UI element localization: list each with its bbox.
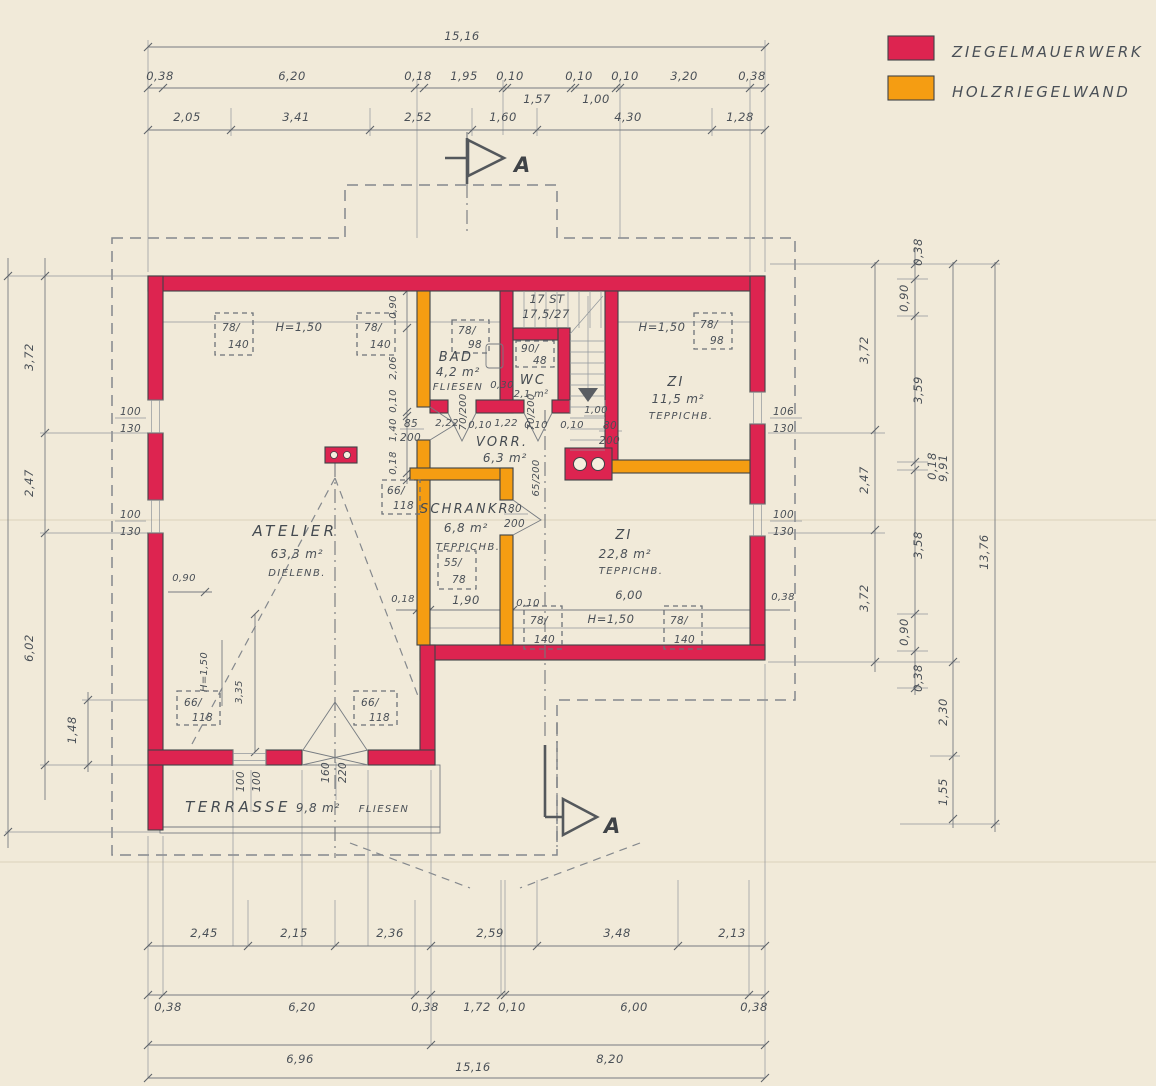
room-area: 11,5 m² — [652, 392, 705, 406]
dim-label: 0,10 — [560, 420, 583, 431]
door-label: 200 — [504, 518, 525, 530]
stair-ratio: 17,5/27 — [522, 307, 570, 321]
window-label: 78/ — [458, 325, 477, 337]
dim-label: 1,00 — [582, 92, 610, 106]
room-area: 4,2 m² — [436, 365, 480, 379]
dim-label: 1,90 — [452, 593, 480, 607]
dim-label: 3,72 — [857, 336, 871, 364]
window-label: 100 — [773, 509, 794, 521]
dim-label: 0,10 — [516, 598, 539, 609]
section-arrow-icon — [563, 799, 597, 835]
dim-label: 0,10 — [388, 389, 399, 412]
dim-label: 1,48 — [65, 716, 79, 744]
dim-label: 0,38 — [740, 1000, 768, 1014]
legend: ZIEGELMAUERWERK HOLZRIEGELWAND — [888, 36, 1143, 101]
floor-plan-drawing: A A 15,16 0,38 6,20 0,18 1,95 0,10 0,10 … — [0, 0, 1156, 1086]
dim-label: 15,16 — [455, 1060, 490, 1074]
section-label: A — [512, 153, 530, 177]
room-floor: FLIESEN — [359, 804, 410, 815]
dim-label: 2,52 — [404, 110, 432, 124]
dim-label: 2,36 — [376, 926, 404, 940]
window-label: 140 — [228, 339, 249, 351]
room-floor: DIELENB. — [268, 568, 326, 579]
dim-label: 3,48 — [603, 926, 631, 940]
dim-label: 1,28 — [726, 110, 754, 124]
room-floor: TEPPICHB. — [649, 411, 714, 422]
dim-label: 0,90 — [388, 295, 399, 318]
dim-label: 6,00 — [620, 1000, 648, 1014]
dim-label: 2,05 — [173, 110, 201, 124]
dim-label: 0,90 — [897, 618, 911, 646]
window-label: 78/ — [670, 615, 689, 627]
dim-label: 1,57 — [523, 92, 551, 106]
room-floor: FLIESEN — [433, 382, 484, 393]
window-label: 66/ — [387, 485, 406, 497]
door-label: 70/200 — [458, 394, 469, 431]
dim-label: 0,30 — [490, 380, 513, 391]
dim-label: 0,90 — [172, 573, 195, 584]
window-label: 66/ — [184, 697, 203, 709]
window-label: 100 — [235, 771, 247, 792]
window-label: 78 — [452, 574, 466, 586]
window-label: 78/ — [530, 615, 549, 627]
legend-brick-label: ZIEGELMAUERWERK — [951, 43, 1143, 61]
room-name-zi2: ZI — [614, 528, 632, 543]
dim-label: 1,60 — [489, 110, 517, 124]
dim-label: 2,47 — [857, 466, 871, 494]
window-label: 140 — [674, 634, 695, 646]
door-label: 200 — [400, 432, 421, 444]
room-name-schrankr: SCHRANKR. — [420, 502, 516, 517]
window-label: 118 — [393, 500, 414, 512]
dim-label: 2,15 — [280, 926, 308, 940]
room-name-wc: WC — [520, 373, 546, 388]
dim-label: 1,40 — [388, 418, 399, 441]
window-label: 98 — [710, 335, 724, 347]
room-name-bad: BAD — [439, 350, 473, 365]
height-label: H=1,50 — [639, 320, 686, 334]
dim-label: 3,20 — [670, 69, 698, 83]
room-name-atelier: ATELIER — [252, 522, 338, 540]
window-label: 78/ — [364, 322, 383, 334]
room-area: 22,8 m² — [599, 547, 652, 561]
dim-label: 15,16 — [444, 29, 479, 43]
dim-label: 1,55 — [936, 778, 950, 806]
window-label: 130 — [120, 423, 141, 435]
window-label: 130 — [120, 526, 141, 538]
dim-label: 0,90 — [897, 284, 911, 312]
dim-label: 6,20 — [288, 1000, 316, 1014]
door-label: 200 — [599, 435, 620, 447]
dim-label: 0,38 — [411, 1000, 439, 1014]
legend-timber-label: HOLZRIEGELWAND — [952, 83, 1130, 101]
dim-label: 6,96 — [286, 1052, 314, 1066]
dim-label: 0,10 — [565, 69, 593, 83]
dim-label: 3,59 — [911, 376, 925, 404]
window-label: 55/ — [444, 557, 463, 569]
dim-label: 13,76 — [977, 534, 991, 569]
door-label: 160 — [320, 762, 332, 783]
dim-label: 0,38 — [154, 1000, 182, 1014]
dim-label: 6,00 — [615, 588, 643, 602]
room-area: 6,8 m² — [444, 521, 488, 535]
window-label: 48 — [533, 355, 547, 367]
window-label: 130 — [773, 526, 794, 538]
stair-count: 17 ST — [529, 292, 565, 306]
dim-label: 0,38 — [911, 664, 925, 692]
window-label: 100 — [120, 406, 141, 418]
room-name-vorr: VORR. — [476, 435, 528, 450]
dim-label: 0,38 — [911, 238, 925, 266]
door-label: 65/200 — [531, 460, 542, 497]
window-label: 100 — [120, 509, 141, 521]
dims-left: 3,72 2,47 6,02 1,48 — [22, 343, 79, 744]
dim-label: 8,20 — [596, 1052, 624, 1066]
dim-label: 6,20 — [278, 69, 306, 83]
window-label: 118 — [369, 712, 390, 724]
window-label: 98 — [468, 339, 482, 351]
legend-brick-swatch — [888, 36, 934, 60]
room-area: 6,3 m² — [483, 451, 527, 465]
door-label: 220 — [337, 762, 349, 783]
door-label: 85 — [404, 418, 418, 430]
dim-label: 0,10 — [611, 69, 639, 83]
legend-timber-swatch — [888, 76, 934, 100]
dim-label: 2,30 — [936, 698, 950, 726]
window-label: 106 — [773, 406, 794, 418]
dims-top: 15,16 0,38 6,20 0,18 1,95 0,10 0,10 0,10… — [146, 29, 766, 124]
window-label: 140 — [534, 634, 555, 646]
room-name-terrasse: TERRASSE — [185, 798, 291, 816]
dim-label: 2,47 — [22, 469, 36, 497]
dim-label: 1,22 — [494, 418, 517, 429]
dim-label: 0,10 — [496, 69, 524, 83]
room-area: 9,8 m² — [296, 801, 340, 815]
stair-direction-arrow — [578, 388, 598, 402]
room-name-zi1: ZI — [666, 375, 684, 390]
window-label: 118 — [192, 712, 213, 724]
dim-label: 0,18 — [391, 594, 414, 605]
dim-label: 0,38 — [738, 69, 766, 83]
window-label: 90/ — [521, 343, 540, 355]
dim-label: H=1,50 — [199, 652, 210, 692]
door-label: 70/200 — [526, 394, 537, 431]
door-label: 80 — [603, 420, 617, 432]
dim-label: 3,58 — [911, 531, 925, 559]
section-marker-top: A — [445, 132, 530, 236]
dim-label: 0,18 — [388, 451, 399, 474]
room-floor: TEPPICHB. — [599, 566, 664, 577]
door-label: 80 — [508, 503, 522, 515]
window-label: 66/ — [361, 697, 380, 709]
section-label: A — [602, 814, 620, 838]
dim-label: 2,13 — [718, 926, 746, 940]
dim-label: 0,38 — [146, 69, 174, 83]
dim-label: 2,22 — [435, 418, 458, 429]
dim-label: 0,10 — [498, 1000, 526, 1014]
window-label: 140 — [370, 339, 391, 351]
dim-label: 2,59 — [476, 926, 504, 940]
dim-label: 1,95 — [450, 69, 478, 83]
dim-label: 3,41 — [282, 110, 310, 124]
dim-label: 3,72 — [857, 584, 871, 612]
section-arrow-icon — [468, 140, 504, 176]
dim-label: 6,02 — [22, 634, 36, 662]
dim-label: 0,18 — [404, 69, 432, 83]
height-label: H=1,50 — [276, 320, 323, 334]
dim-label: 1,72 — [463, 1000, 491, 1014]
floor-plan-sheet: A A 15,16 0,38 6,20 0,18 1,95 0,10 0,10 … — [0, 0, 1156, 1086]
window-label: 78/ — [700, 319, 719, 331]
dims-right: 3,72 2,47 3,72 0,38 0,90 3,59 0,18 3,58 … — [857, 238, 991, 806]
dim-label: 9,91 — [936, 454, 950, 482]
height-label: H=1,50 — [588, 612, 635, 626]
dim-label: 2,45 — [190, 926, 218, 940]
room-labels: ATELIER 63,3 m² DIELENB. BAD 4,2 m² FLIE… — [185, 292, 713, 816]
room-floor: TEPPICHB. — [436, 542, 501, 553]
dim-label: 1,00 — [584, 405, 607, 416]
window-label: 130 — [773, 423, 794, 435]
dim-label: 3,35 — [234, 680, 245, 703]
room-area: 63,3 m² — [271, 547, 324, 561]
window-label: 78/ — [222, 322, 241, 334]
dim-label: 0,38 — [771, 592, 794, 603]
paper-creases — [0, 520, 1156, 862]
dim-label: 2,06 — [388, 356, 399, 379]
dim-label: 4,30 — [614, 110, 642, 124]
window-label: 100 — [251, 771, 263, 792]
dim-label: 3,72 — [22, 343, 36, 371]
dim-label: 0,10 — [468, 420, 491, 431]
